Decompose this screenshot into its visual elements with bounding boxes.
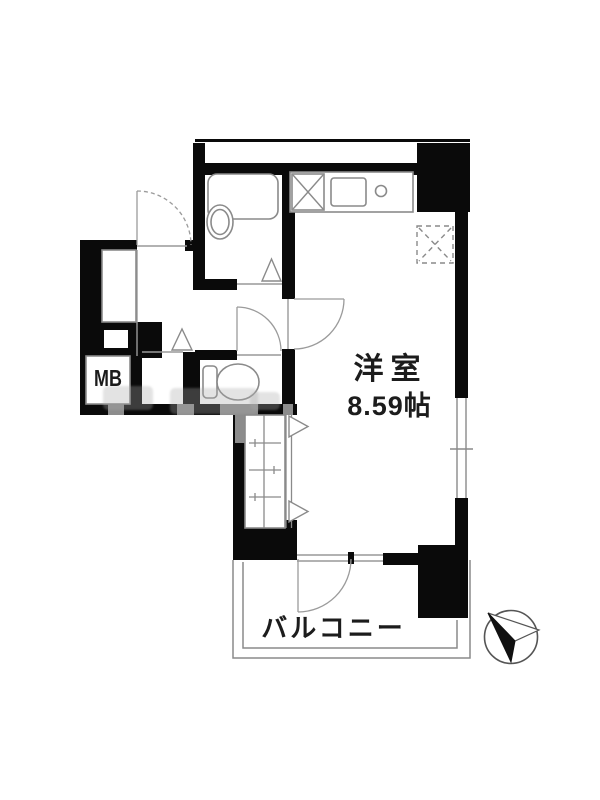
wall-pillar-top-right xyxy=(417,143,470,212)
room-door-arc xyxy=(294,299,344,349)
watermark-blob xyxy=(250,392,280,410)
shoe-cabinet xyxy=(102,250,136,322)
wall-pillar-bottom-right xyxy=(418,545,468,618)
closet-opening-marker-top xyxy=(289,416,308,437)
refrigerator-space xyxy=(417,226,453,263)
kitchen-sink xyxy=(331,178,366,206)
balcony-door-arc xyxy=(298,559,351,612)
watermark-blob xyxy=(170,388,258,414)
washbasin-bowl xyxy=(211,210,229,235)
closet xyxy=(245,415,285,528)
wall-room-bottom xyxy=(383,553,421,565)
floor-plan-drawing xyxy=(0,0,600,800)
faucet xyxy=(376,186,387,197)
wall-bathroom-bottom xyxy=(193,279,237,290)
bathroom-opening-marker xyxy=(262,259,281,281)
balcony-label: バルコニー xyxy=(246,615,421,641)
meter-box-label: MB xyxy=(91,367,125,390)
wall-top-thin-line xyxy=(195,139,470,142)
room-name-label: 洋室 xyxy=(318,355,463,385)
genkan-step-marker xyxy=(172,329,192,350)
wall-hall-room-divider-lower xyxy=(282,349,295,412)
room-size-label: 8.59帖 xyxy=(312,393,467,420)
north-arrow-icon xyxy=(485,611,540,664)
entrance-door-arc xyxy=(137,191,191,245)
toilet-door-arc xyxy=(237,307,281,351)
wall-notch xyxy=(104,330,128,348)
wall-bathroom-left xyxy=(193,143,205,290)
wall-toilet-top xyxy=(195,350,237,360)
wall-right-lower xyxy=(455,498,468,545)
closet-opening-marker-bottom xyxy=(289,501,308,522)
floor-plan: 洋室 8.59帖 バルコニー MB xyxy=(0,0,600,800)
